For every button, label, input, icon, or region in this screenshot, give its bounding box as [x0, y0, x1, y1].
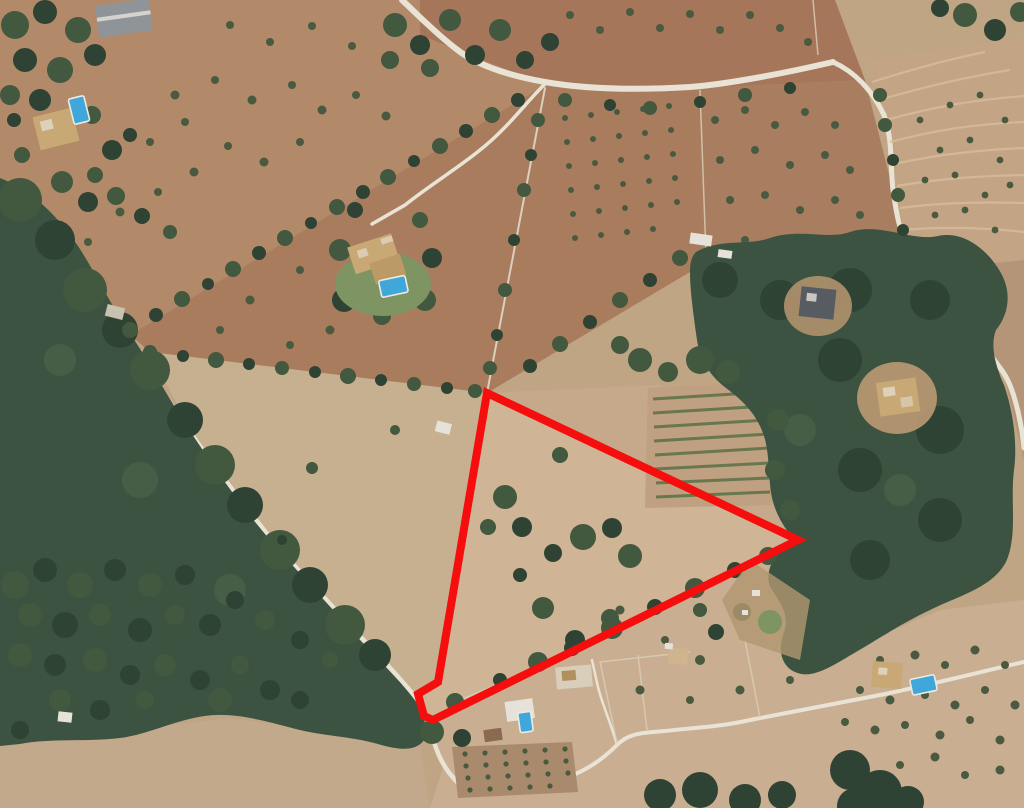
satellite-map-view: [0, 0, 1024, 808]
shed-bottom-left: [58, 711, 73, 722]
garden-shed-1: [752, 590, 760, 596]
house-brown-roof: [483, 728, 502, 742]
house-dark-roof: [799, 286, 837, 319]
garden-shed-2: [742, 610, 748, 615]
house-bottom-2: [555, 664, 593, 689]
house-forest-clearing: [876, 377, 920, 416]
villa-bottom-right: [871, 661, 903, 689]
aerial-photo: [0, 0, 1024, 808]
garden-lawn: [758, 610, 782, 634]
pool-bottom-center: [518, 711, 534, 733]
